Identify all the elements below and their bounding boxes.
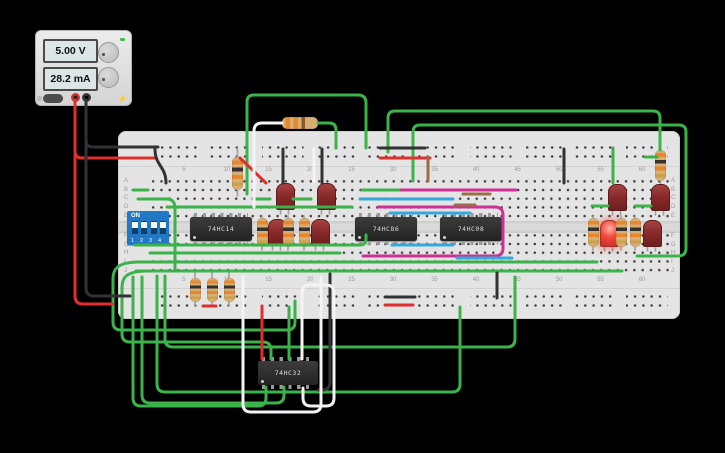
- row-label: E: [671, 213, 675, 219]
- resistor-bottom-2[interactable]: [207, 278, 218, 302]
- column-label: 5: [182, 167, 185, 173]
- resistor-top[interactable]: [282, 117, 318, 129]
- column-label: 55: [597, 167, 604, 173]
- row-label: F: [671, 233, 675, 239]
- led-8[interactable]: [643, 220, 662, 247]
- dip-switch[interactable]: ON 1 2 3 4: [127, 211, 169, 245]
- led-5[interactable]: [608, 184, 627, 211]
- dip-switch-4[interactable]: [160, 221, 166, 234]
- breadboard-divider-bottom: [118, 288, 680, 289]
- row-label: B: [124, 187, 128, 193]
- ic-74hc32[interactable]: 74HC32: [258, 361, 318, 385]
- column-label: 35: [431, 167, 438, 173]
- column-label: 35: [431, 277, 438, 283]
- row-label: C: [671, 195, 675, 201]
- column-label: 45: [514, 167, 521, 173]
- column-label: 40: [473, 277, 480, 283]
- resistor-bottom-3[interactable]: [224, 278, 235, 302]
- power-toggle[interactable]: [43, 94, 63, 103]
- row-label: D: [124, 204, 128, 210]
- row-label: H: [124, 250, 128, 256]
- circuit-canvas: 5510101515202025253030353540404545505055…: [0, 0, 725, 453]
- resistor-mid-1[interactable]: [257, 218, 268, 247]
- ic-label: 74HC86: [373, 225, 399, 233]
- column-label: 15: [265, 167, 272, 173]
- breadboard-divider-top: [118, 166, 680, 167]
- led-6[interactable]: [651, 184, 670, 211]
- column-label: 10: [224, 167, 231, 173]
- dip-switch-2[interactable]: [141, 221, 147, 234]
- resistor-right-3[interactable]: [630, 218, 641, 247]
- resistor-mid-2[interactable]: [283, 218, 294, 247]
- pin1-marker: [261, 380, 264, 383]
- column-label: 50: [556, 277, 563, 283]
- ic-74hc86[interactable]: 74HC86: [355, 217, 417, 241]
- column-label: 60: [639, 277, 646, 283]
- pin1-marker: [193, 236, 196, 239]
- dip-switch-1[interactable]: [132, 221, 138, 234]
- row-label: J: [124, 268, 127, 274]
- breadboard-rail-bottom[interactable]: [158, 292, 679, 311]
- resistor-col61[interactable]: [655, 150, 666, 181]
- pin1-marker: [443, 236, 446, 239]
- resistor-mid-3[interactable]: [299, 218, 310, 247]
- row-label: J: [671, 268, 674, 274]
- column-label: 50: [556, 167, 563, 173]
- dip-switch-3[interactable]: [151, 221, 157, 234]
- ic-74hc14[interactable]: 74HC14: [190, 217, 252, 241]
- dip-handle-1[interactable]: [132, 222, 138, 228]
- current-display: 28.2 mA: [43, 67, 98, 91]
- row-label: A: [124, 178, 128, 184]
- row-label: C: [124, 195, 128, 201]
- lightning-icon: ⚡: [118, 95, 127, 103]
- row-label: A: [671, 178, 675, 184]
- ic-label: 74HC32: [275, 369, 301, 377]
- led-4[interactable]: [311, 219, 330, 246]
- dip-handle-3[interactable]: [151, 222, 157, 228]
- column-label: 25: [348, 167, 355, 173]
- row-label: I: [671, 259, 673, 265]
- column-label: 20: [307, 277, 314, 283]
- resistor-right-1[interactable]: [588, 218, 599, 247]
- ic-74hc08[interactable]: 74HC08: [440, 217, 502, 241]
- column-label: 60: [639, 167, 646, 173]
- dip-on-label: ON: [131, 213, 140, 219]
- column-label: 30: [390, 167, 397, 173]
- ic-label: 74HC14: [208, 225, 234, 233]
- power-supply[interactable]: 5.00 V 28.2 mA ⚡: [35, 30, 132, 106]
- dip-position-numbers: 1 2 3 4: [131, 238, 162, 244]
- column-label: 20: [307, 167, 314, 173]
- resistor-right-2[interactable]: [616, 218, 627, 247]
- pin1-marker: [358, 236, 361, 239]
- resistor-col10[interactable]: [232, 157, 243, 190]
- resistor-bottom-1[interactable]: [190, 278, 201, 302]
- row-label: B: [671, 187, 675, 193]
- voltage-display: 5.00 V: [43, 39, 98, 63]
- column-label: 25: [348, 277, 355, 283]
- column-label: 55: [597, 277, 604, 283]
- column-label: 15: [265, 277, 272, 283]
- power-indicator-led: [120, 38, 125, 41]
- ic-label: 74HC08: [458, 225, 484, 233]
- column-label: 30: [390, 277, 397, 283]
- current-knob[interactable]: [98, 67, 119, 88]
- row-label: D: [671, 204, 675, 210]
- dip-handle-2[interactable]: [141, 222, 147, 228]
- column-label: 5: [182, 277, 185, 283]
- column-label: 40: [473, 167, 480, 173]
- voltage-knob[interactable]: [98, 42, 119, 63]
- dip-handle-4[interactable]: [160, 222, 166, 228]
- wire-red-rail-bot[interactable]: [75, 100, 112, 304]
- row-label: G: [671, 242, 676, 248]
